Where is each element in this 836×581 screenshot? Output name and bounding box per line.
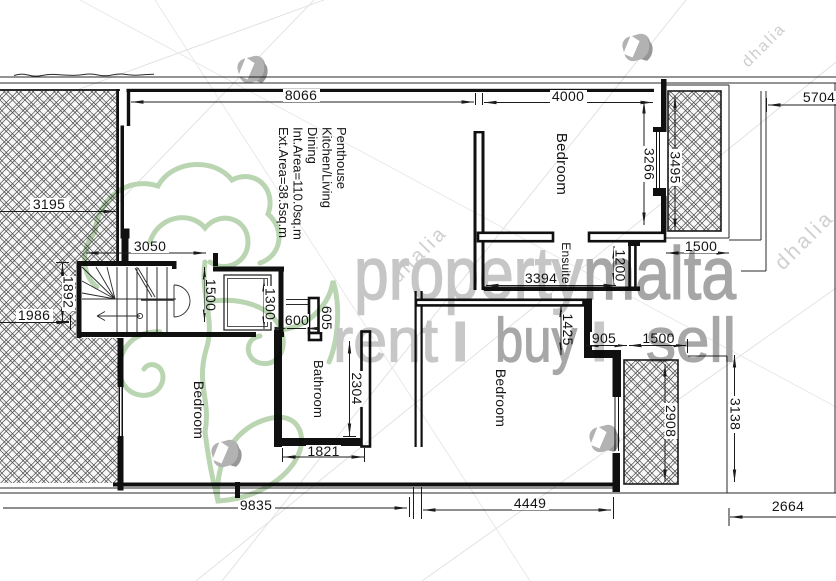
svg-text:1986: 1986 [18, 307, 50, 323]
svg-text:4000: 4000 [552, 88, 584, 104]
svg-text:buy: buy [495, 307, 577, 376]
svg-text:3138: 3138 [728, 398, 744, 430]
svg-text:1892: 1892 [61, 276, 77, 308]
svg-text:Ext.Area=38.5sq.m: Ext.Area=38.5sq.m [276, 127, 291, 238]
svg-text:3266: 3266 [642, 148, 658, 180]
svg-text:Bedroom: Bedroom [493, 369, 509, 427]
svg-text:5704: 5704 [803, 89, 835, 105]
svg-text:8066: 8066 [285, 87, 317, 103]
svg-text:9835: 9835 [240, 497, 272, 513]
svg-text:3195: 3195 [33, 196, 65, 212]
svg-text:2664: 2664 [772, 498, 804, 514]
svg-text:Int.Area=110.0sq.m: Int.Area=110.0sq.m [291, 127, 306, 240]
svg-text:malta: malta [583, 232, 737, 315]
svg-text:rent: rent [333, 307, 438, 376]
svg-text:property: property [354, 232, 583, 315]
svg-text:2304: 2304 [349, 372, 365, 404]
svg-text:Penthouse: Penthouse [334, 127, 349, 189]
svg-text:3495: 3495 [668, 151, 684, 183]
svg-text:Kitchen/Living: Kitchen/Living [320, 127, 335, 208]
svg-text:4449: 4449 [514, 495, 546, 511]
svg-text:1821: 1821 [307, 443, 339, 459]
svg-text:2908: 2908 [663, 405, 679, 437]
svg-text:sell: sell [646, 307, 736, 376]
svg-text:Bathroom: Bathroom [311, 360, 326, 418]
svg-text:Dining: Dining [305, 127, 320, 164]
